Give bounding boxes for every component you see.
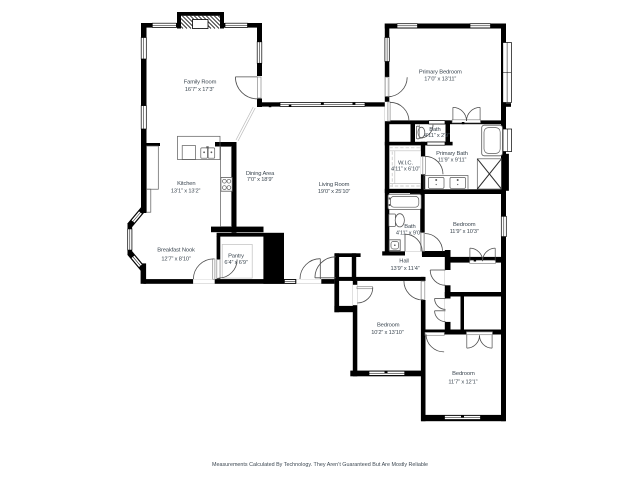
svg-text:19’0” x 25’10”: 19’0” x 25’10” [318,189,351,195]
svg-text:Measurements Calculated By Tec: Measurements Calculated By Technology. T… [212,462,428,468]
svg-text:Dining Area: Dining Area [246,171,275,177]
svg-text:11’9” x 10’3”: 11’9” x 10’3” [450,229,479,235]
svg-text:Family Room: Family Room [184,80,217,86]
svg-text:10’2” x 13’10”: 10’2” x 13’10” [371,330,404,336]
svg-text:13’1” x 13’2”: 13’1” x 13’2” [171,188,201,194]
svg-text:Living Room: Living Room [319,182,350,188]
svg-text:4’11” x 9’0”: 4’11” x 9’0” [396,231,422,237]
svg-text:13’9” x 11’4”: 13’9” x 11’4” [391,266,420,272]
svg-text:Bedroom: Bedroom [377,322,400,328]
svg-text:Primary Bedroom: Primary Bedroom [419,69,462,75]
svg-text:Kitchen: Kitchen [177,181,195,187]
svg-text:6’4” x 6’9”: 6’4” x 6’9” [224,260,248,266]
svg-text:12’7” x 8’10”: 12’7” x 8’10” [161,257,191,263]
svg-text:11’7” x 12’1”: 11’7” x 12’1” [448,379,477,385]
svg-text:Hall: Hall [399,258,408,264]
svg-text:4’11” x 6’10”: 4’11” x 6’10” [391,167,420,173]
svg-text:7’0” x 18’9”: 7’0” x 18’9” [247,177,274,183]
svg-text:Pantry: Pantry [228,253,244,259]
svg-text:W.I.C.: W.I.C. [398,160,413,166]
svg-text:17’0” x 13’11”: 17’0” x 13’11” [424,76,456,82]
svg-text:Bedroom: Bedroom [453,222,476,228]
svg-text:Bedroom: Bedroom [452,371,475,377]
svg-text:Bath: Bath [404,224,415,230]
svg-text:11’9” x 9’11”: 11’9” x 9’11” [438,158,467,164]
svg-text:Primary Bath: Primary Bath [436,151,468,157]
svg-text:16’7” x 17’3”: 16’7” x 17’3” [185,87,215,93]
svg-text:4’11” x 2’9”: 4’11” x 2’9” [424,133,450,139]
svg-text:Breakfast Nook: Breakfast Nook [157,247,195,253]
